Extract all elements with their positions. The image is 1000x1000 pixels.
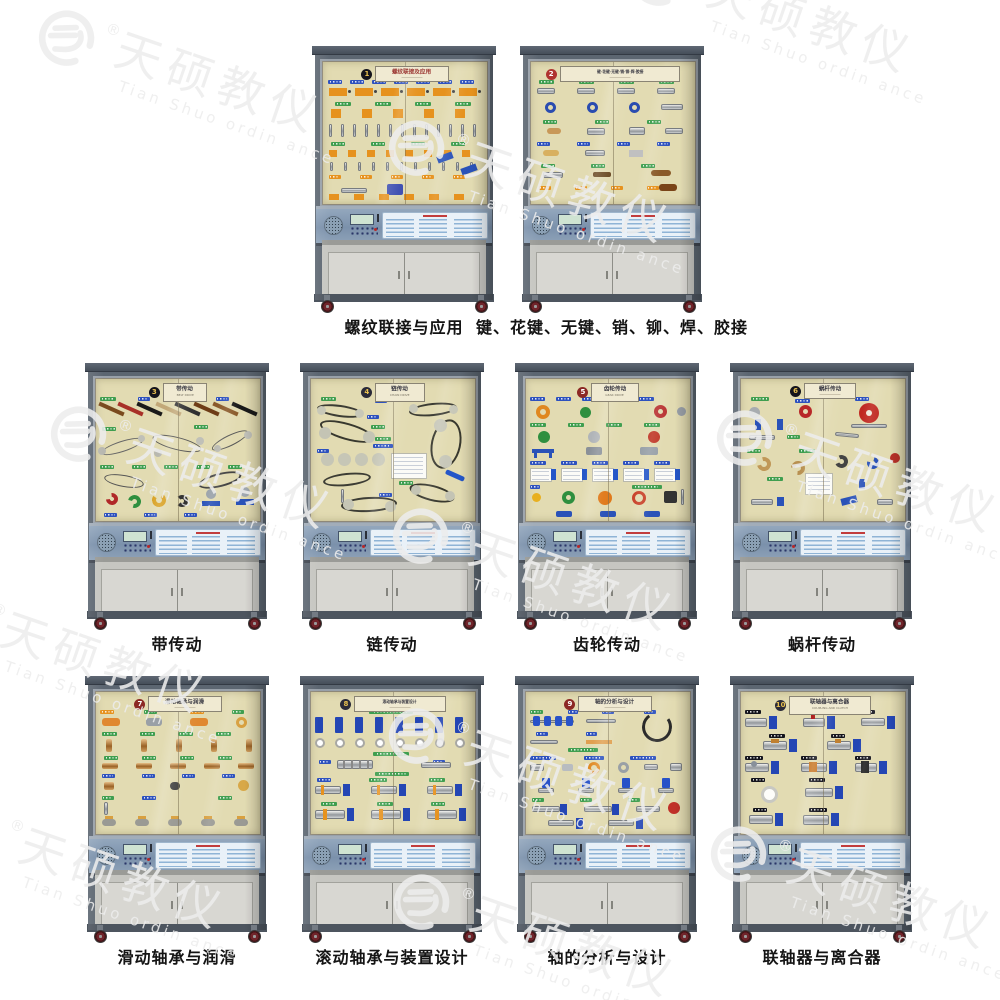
- lcd-display: [338, 531, 362, 542]
- wheel-icon: [248, 930, 261, 943]
- power-button: [792, 858, 795, 861]
- part-shape: [777, 497, 784, 506]
- part-shape: [462, 150, 470, 157]
- caster-wheel: [475, 295, 487, 311]
- plaque-title: 螺纹联接及应用: [392, 70, 431, 76]
- part-shape: [769, 734, 785, 738]
- cabinet-top-cap: [520, 46, 704, 55]
- door-handle: [181, 901, 183, 909]
- part-shape: [630, 756, 656, 760]
- wheel-icon: [321, 300, 334, 313]
- part-shape: [665, 128, 683, 134]
- cabinet-number: 5: [581, 389, 586, 396]
- part-shape: [367, 415, 379, 419]
- part-shape: [754, 454, 773, 473]
- display-window: 6 蜗杆传动: [740, 378, 906, 522]
- caster-wheel: [739, 612, 751, 628]
- door-split: [607, 883, 608, 925]
- cabinet-base: [525, 557, 689, 616]
- plaque-subtitle: GEAR DRIVE: [606, 394, 625, 397]
- wheel-icon: [893, 930, 906, 943]
- part-shape: [789, 739, 797, 752]
- part-shape: [661, 104, 683, 110]
- cabinet-body: 8 滚动轴承与装置设计: [303, 678, 481, 930]
- part-shape: [461, 124, 464, 137]
- part-shape: [658, 788, 674, 793]
- part-shape: [755, 419, 761, 430]
- display-window: 4 链传动 CHAIN DRIVE: [310, 378, 476, 522]
- caster-wheel: [529, 295, 541, 311]
- panel-text-column: [374, 536, 402, 554]
- part-shape: [196, 437, 204, 445]
- part-shape: [543, 150, 559, 156]
- part-shape: [439, 455, 452, 468]
- part-shape: [315, 786, 341, 794]
- panel-heading: [626, 532, 650, 534]
- part-shape: [421, 762, 451, 768]
- part-shape: [104, 513, 117, 517]
- part-shape: [799, 405, 812, 418]
- part-shape: [102, 732, 117, 736]
- part-shape: [132, 465, 146, 469]
- part-shape: [455, 738, 465, 748]
- wheel-icon: [524, 617, 537, 630]
- part-shape: [548, 820, 574, 826]
- part-shape: [644, 423, 660, 427]
- part-shape: [180, 756, 194, 760]
- part-shape: [379, 809, 383, 820]
- cabinet-top-cap: [300, 363, 484, 372]
- part-shape: [632, 485, 662, 489]
- part-shape: [547, 128, 561, 134]
- part-shape: [541, 164, 555, 168]
- panel-heading: [841, 532, 865, 534]
- instruction-panel: [370, 842, 476, 869]
- part-shape: [577, 142, 590, 146]
- toggle-switch: [795, 531, 797, 539]
- part-shape: [749, 407, 760, 418]
- part-shape: [355, 738, 365, 748]
- panel-text-column: [872, 849, 900, 867]
- part-shape: [749, 815, 773, 824]
- glass-door-split: [178, 692, 179, 834]
- instruction-panel: [155, 529, 261, 556]
- toggle-switch: [585, 214, 587, 222]
- cabinet-body: 7 滑动轴承与润滑: [88, 678, 266, 930]
- part-shape: [617, 88, 635, 94]
- plaque-subtitle: [609, 77, 630, 79]
- wheel-icon: [524, 930, 537, 943]
- glass-door-split: [608, 692, 609, 834]
- lcd-display: [350, 214, 374, 225]
- part-shape: [315, 717, 323, 733]
- part-shape: [317, 449, 329, 453]
- part-shape: [362, 109, 372, 118]
- part-shape: [429, 194, 439, 200]
- part-shape: [587, 128, 605, 135]
- part-shape: [437, 124, 440, 137]
- cabinet-number-badge: 3: [149, 387, 160, 398]
- title-plaque: 螺纹联接及应用: [375, 66, 448, 82]
- part-shape: [670, 763, 682, 771]
- door-split: [822, 883, 823, 925]
- part-shape: [745, 718, 767, 727]
- part-shape: [644, 764, 658, 770]
- wheel-icon: [475, 300, 488, 313]
- lcd-display: [123, 531, 147, 542]
- plaque-row: 5 齿轮传动 GEAR DRIVE: [526, 383, 690, 402]
- lcd-display: [558, 214, 582, 225]
- toggle-switch: [580, 531, 582, 539]
- part-shape: [201, 819, 215, 826]
- part-shape: [372, 162, 375, 171]
- part-shape: [426, 90, 429, 93]
- part-shape: [329, 150, 337, 157]
- cabinet-number: 9: [568, 701, 573, 708]
- part-shape: [102, 796, 114, 800]
- part-shape: [348, 90, 351, 93]
- part-shape: [329, 88, 347, 96]
- caster-wheel: [463, 925, 475, 941]
- speaker-grille-icon: [532, 216, 551, 235]
- part-shape: [747, 449, 761, 453]
- door-handle: [386, 901, 388, 909]
- cabinet-number: 7: [138, 701, 143, 708]
- base-doors: [101, 569, 253, 613]
- panel-text-column: [589, 536, 617, 554]
- part-shape: [374, 90, 377, 93]
- title-plaque: 滑动轴承与润滑: [148, 696, 221, 712]
- part-shape: [456, 162, 459, 171]
- part-shape: [861, 718, 885, 726]
- display-window: 10 联轴器与离合器 COUPLING AND CLUTCH: [740, 691, 906, 835]
- cabinet-top-cap: [312, 46, 496, 55]
- caster-wheel: [309, 925, 321, 941]
- part-shape: [532, 798, 544, 802]
- part-shape: [341, 124, 344, 137]
- display-cabinet: 4 链传动 CHAIN DRIVE: [303, 363, 481, 655]
- part-shape: [100, 465, 114, 469]
- part-shape: [343, 784, 350, 796]
- part-shape: [618, 788, 634, 793]
- part-shape: [424, 150, 432, 157]
- part-shape: [809, 808, 827, 812]
- part-shape: [532, 806, 560, 812]
- caster-wheel: [248, 612, 260, 628]
- part-shape: [371, 425, 385, 429]
- caster-wheel: [893, 612, 905, 628]
- base-doors: [316, 569, 468, 613]
- part-shape: [580, 798, 592, 802]
- cabinet-caption: 蜗杆传动: [788, 631, 856, 655]
- part-shape: [429, 778, 445, 782]
- display-cabinet: 6 蜗杆传动: [733, 363, 911, 655]
- part-shape: [530, 764, 544, 771]
- plaque-row: 9 轴的分析与设计: [526, 696, 690, 712]
- wheel-icon: [739, 617, 752, 630]
- part-shape: [400, 162, 403, 171]
- panel-text-column: [804, 849, 832, 867]
- plaque-title: 滚动轴承与装置设计: [383, 701, 417, 705]
- power-button: [147, 858, 150, 861]
- part-shape: [375, 102, 391, 106]
- part-shape: [530, 461, 546, 465]
- part-shape: [582, 469, 587, 480]
- power-button: [582, 228, 585, 231]
- part-shape: [218, 756, 232, 760]
- part-shape: [142, 756, 156, 760]
- door-handle: [611, 588, 613, 596]
- part-shape: [543, 120, 557, 124]
- part-shape: [576, 818, 583, 829]
- part-shape: [580, 407, 591, 418]
- part-shape: [751, 499, 773, 505]
- display-window: 1 螺纹联接及应用: [322, 61, 488, 205]
- part-shape: [104, 802, 108, 815]
- cabinet-body: 2 键·花键·无键·销·铆·焊·胶接: [523, 48, 701, 300]
- lcd-display: [338, 844, 362, 855]
- toggle-switch: [377, 214, 379, 222]
- door-split: [612, 253, 613, 295]
- part-shape: [771, 739, 779, 743]
- part-shape: [769, 716, 777, 729]
- power-button: [147, 545, 150, 548]
- part-shape: [677, 407, 686, 416]
- part-shape: [142, 796, 156, 800]
- glass-door-split: [393, 692, 394, 834]
- part-shape: [608, 820, 634, 826]
- door-split: [404, 253, 405, 295]
- caster-wheel: [94, 925, 106, 941]
- part-shape: [102, 718, 120, 726]
- part-shape: [103, 472, 144, 491]
- part-shape: [415, 102, 431, 106]
- caster-wheel: [524, 612, 536, 628]
- part-shape: [538, 788, 554, 793]
- part-shape: [745, 763, 769, 772]
- cabinet-number-badge: 2: [546, 69, 557, 80]
- panel-text-column: [454, 219, 482, 237]
- plaque-title: 滑动轴承与润滑: [165, 700, 204, 706]
- part-shape: [575, 186, 587, 190]
- cabinet-caption: 滚动轴承与装置设计: [315, 944, 468, 968]
- part-shape: [654, 461, 670, 465]
- door-handle: [616, 271, 618, 279]
- part-shape: [413, 124, 416, 137]
- base-doors: [531, 882, 683, 926]
- panel-heading: [196, 845, 220, 847]
- part-shape: [613, 469, 618, 480]
- part-shape: [556, 511, 572, 517]
- title-plaque: 链传动 CHAIN DRIVE: [375, 383, 424, 402]
- caster-wheel: [248, 925, 260, 941]
- part-shape: [102, 819, 116, 826]
- part-shape: [422, 175, 434, 179]
- toggle-switch: [365, 531, 367, 539]
- lcd-display: [553, 531, 577, 542]
- part-shape: [367, 760, 369, 769]
- part-shape: [386, 150, 394, 157]
- part-shape: [138, 435, 145, 442]
- part-shape: [865, 455, 881, 471]
- door-handle: [601, 901, 603, 909]
- brand-logo-icon: [0, 796, 9, 872]
- part-shape: [859, 479, 865, 489]
- cabinet-body: 3 带传动 BELT DRIVE: [88, 365, 266, 617]
- part-shape: [545, 102, 556, 113]
- plaque-row: 4 链传动 CHAIN DRIVE: [311, 383, 475, 402]
- part-shape: [835, 432, 859, 438]
- cabinet-number: 1: [365, 71, 370, 78]
- part-shape: [151, 492, 167, 508]
- part-shape: [178, 732, 193, 736]
- lcd-display: [123, 844, 147, 855]
- part-shape: [315, 810, 345, 819]
- part-shape: [593, 172, 611, 177]
- part-shape: [662, 778, 670, 788]
- display-window: 7 滑动轴承与润滑: [95, 691, 261, 835]
- part-shape: [636, 818, 643, 829]
- plaque-row: 7 滑动轴承与润滑: [96, 696, 260, 712]
- part-shape: [890, 453, 900, 463]
- part-shape: [478, 90, 481, 93]
- panel-text-column: [872, 536, 900, 554]
- door-handle: [396, 588, 398, 596]
- part-shape: [853, 739, 861, 752]
- cabinet-body: 4 链传动 CHAIN DRIVE: [303, 365, 481, 617]
- glass-door-split: [823, 379, 824, 521]
- cabinet-top-cap: [730, 363, 914, 372]
- part-shape: [141, 739, 147, 752]
- part-shape: [353, 124, 356, 137]
- part-shape: [801, 756, 817, 760]
- glass-door-split: [405, 62, 406, 204]
- cabinet-base: [740, 870, 904, 929]
- part-shape: [449, 124, 452, 137]
- speaker-grille-icon: [527, 846, 546, 865]
- plaque-row: 3 带传动 BELT DRIVE: [96, 383, 260, 402]
- door-handle: [181, 588, 183, 596]
- part-shape: [321, 802, 337, 806]
- door-handle: [408, 271, 410, 279]
- part-shape: [644, 469, 649, 480]
- part-shape: [587, 102, 598, 113]
- base-doors: [328, 252, 480, 296]
- part-shape: [617, 142, 630, 146]
- part-shape: [331, 109, 341, 118]
- watermark-text: 天硕教仪 Tian Shuo ordin ance: [695, 0, 946, 109]
- part-shape: [536, 732, 548, 736]
- part-shape: [319, 760, 331, 764]
- part-shape: [347, 808, 354, 821]
- part-shape: [659, 184, 677, 191]
- cabinet-body: 5 齿轮传动 GEAR DRIVE: [518, 365, 696, 617]
- base-doors: [531, 569, 683, 613]
- wheel-icon: [893, 617, 906, 630]
- panel-heading: [841, 845, 865, 847]
- panel-text-column: [192, 536, 220, 554]
- part-shape: [777, 419, 783, 430]
- part-shape: [317, 406, 326, 415]
- instruction-panel: [382, 212, 488, 239]
- caster-wheel: [678, 925, 690, 941]
- cabinet-number-badge: 10: [775, 700, 786, 711]
- part-shape: [767, 477, 783, 481]
- cabinet-number: 3: [152, 389, 157, 396]
- part-shape: [562, 764, 573, 771]
- cabinet-plinth: [87, 924, 267, 932]
- cabinet-number-badge: 1: [361, 69, 372, 80]
- plaque-row: 10 联轴器与离合器 COUPLING AND CLUTCH: [741, 696, 905, 715]
- toggle-switch: [365, 844, 367, 852]
- part-shape: [453, 175, 465, 179]
- part-shape: [424, 109, 434, 118]
- part-shape: [795, 399, 810, 403]
- part-shape: [668, 802, 680, 814]
- part-shape: [365, 124, 368, 137]
- instruction-panel: [155, 842, 261, 869]
- part-shape: [240, 487, 250, 497]
- part-shape: [360, 175, 372, 179]
- part-shape: [317, 778, 331, 782]
- part-shape: [582, 778, 590, 788]
- part-shape: [319, 427, 331, 439]
- part-shape: [598, 491, 612, 505]
- cabinet-base: [95, 870, 259, 929]
- panel-text-column: [442, 536, 470, 554]
- cabinet-plinth: [517, 924, 697, 932]
- plaque-subtitle: [401, 77, 422, 79]
- cabinet-plinth: [87, 611, 267, 619]
- part-shape: [855, 756, 871, 760]
- part-shape: [561, 461, 577, 465]
- watermark-brand-cn: 天硕教仪: [702, 0, 946, 89]
- part-shape: [809, 762, 817, 772]
- part-shape: [436, 151, 453, 163]
- display-cabinet: 9 轴的分析与设计: [518, 676, 696, 968]
- instruction-panel: [370, 529, 476, 556]
- part-shape: [415, 717, 423, 733]
- part-shape: [202, 501, 220, 506]
- part-shape: [335, 717, 343, 733]
- plaque-subtitle: [604, 707, 625, 709]
- part-shape: [585, 150, 605, 156]
- panel-text-column: [662, 219, 690, 237]
- cabinet-body: 10 联轴器与离合器 COUPLING AND CLUTCH: [733, 678, 911, 930]
- panel-text-column: [657, 849, 685, 867]
- title-plaque: 轴的分析与设计: [578, 696, 651, 712]
- part-shape: [321, 453, 334, 466]
- part-shape: [341, 188, 367, 193]
- display-cabinet: 7 滑动轴承与润滑: [88, 676, 266, 968]
- part-shape: [373, 752, 409, 756]
- part-shape: [835, 786, 843, 799]
- part-shape: [343, 499, 354, 510]
- panel-text-column: [192, 849, 220, 867]
- part-shape: [632, 491, 646, 505]
- part-shape: [651, 170, 671, 176]
- part-shape: [549, 453, 552, 458]
- part-shape: [544, 716, 551, 726]
- part-shape: [330, 162, 333, 171]
- part-shape: [629, 102, 640, 113]
- cabinet-caption: 联轴器与离合器: [762, 944, 881, 968]
- part-shape: [104, 782, 114, 790]
- watermark-brand-en: Tian Shuo ordin ance: [116, 77, 337, 168]
- part-shape: [803, 815, 829, 825]
- cabinet-base: [740, 557, 904, 616]
- plaque-subtitle: BELT DRIVE: [176, 394, 193, 397]
